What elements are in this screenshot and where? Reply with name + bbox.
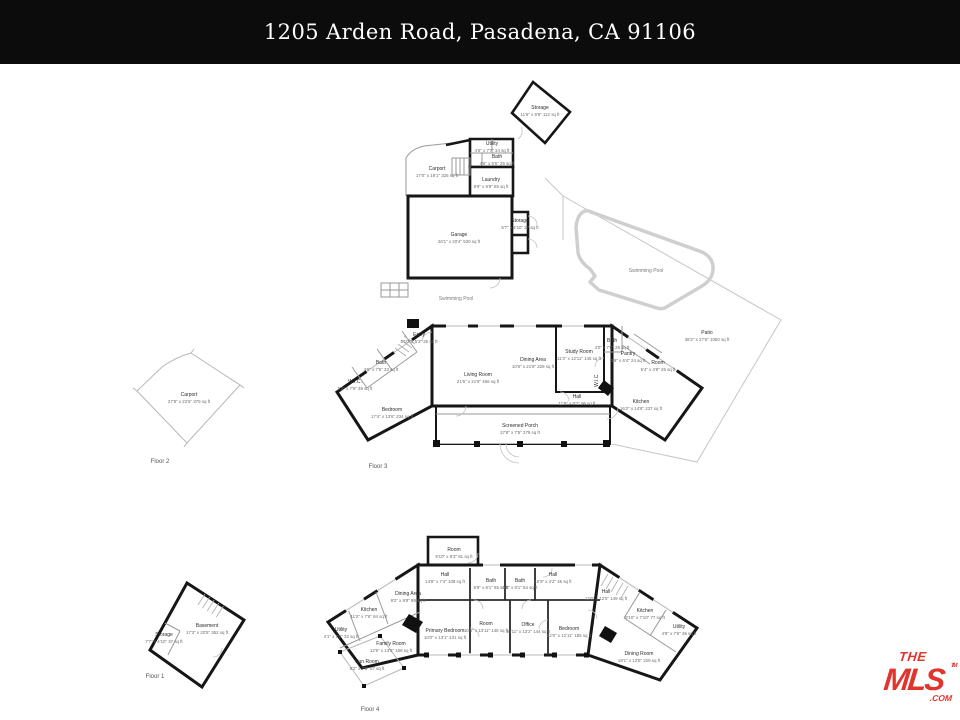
caption-floor2: Floor 2 <box>151 459 170 467</box>
room-label-bath-top: Bath4'6" x 5'6" 25 sq ft <box>480 154 515 166</box>
room-size: 4'6" x 7'5" 33 sq ft <box>364 366 399 372</box>
room-label-garage-storage: Storage5'7" x 4'10" 27 sq ft <box>501 218 538 230</box>
room-size: 5'7" x 4'10" 27 sq ft <box>501 224 538 230</box>
room-label-study-room: Study Room11'3" x 12'11" 145 sq ft <box>557 349 601 361</box>
pool-name: Swimming Pool <box>439 296 473 303</box>
room-label-bedroom-f3: Bedroom17'4" x 13'6" 234 sq ft <box>371 407 413 419</box>
room-size: 26'1" x 20'4" 530 sq ft <box>438 238 480 244</box>
room-label-room-f3: Room5'4" x 4'9" 25 sq ft <box>641 360 676 372</box>
room-label-wic2-f3: W.I.C. <box>594 373 601 387</box>
room-size: 4'9" x 7'6" 36 sq ft <box>662 630 697 636</box>
room-label-bath-f3b: Bath4'0" x 7'0" 28 sq ft <box>595 338 630 350</box>
room-label-bath-f4b: Bath6'8" x 8'1" 54 sq ft <box>503 578 538 590</box>
room-size: 8'2" x 7'0" 57 sq ft <box>350 665 385 671</box>
floor-caption: Floor 3 <box>369 464 388 472</box>
room-label-sun-room: Sun Room8'2" x 7'0" 57 sq ft <box>350 659 385 671</box>
themls-logo: THE MLSTM .COM <box>884 650 956 703</box>
room-size: 11'2" x 7'6" 84 sq ft <box>351 613 388 619</box>
room-size: 21'6" x 21'8" 466 sq ft <box>457 378 499 384</box>
room-size: 17'3" x 20'5" 352 sq ft <box>186 629 228 635</box>
room-size: 10'0" x 13'1" 131 sq ft <box>424 634 466 640</box>
room-size: 9'10" x 8'3" 81 sq ft <box>435 553 472 559</box>
room-label-dining-area-f3: Dining Area10'6" x 21'8" 228 sq ft <box>512 357 554 369</box>
room-size: 11'3" x 12'11" 145 sq ft <box>557 355 601 361</box>
floorplan-drawing <box>0 0 960 720</box>
room-size: 10'11" x 13'2" 144 sq ft <box>506 628 550 634</box>
room-label-office: Office10'11" x 13'2" 144 sq ft <box>506 622 550 634</box>
room-label-carport-top: Carport17'0" x 19'1" 325 sq ft <box>416 166 458 178</box>
room-size: 14'8" x 7'4" 108 sq ft <box>425 578 465 584</box>
caption-floor4: Floor 4 <box>361 707 380 715</box>
room-size: 12'5" x 13'6" 168 sq ft <box>370 647 412 653</box>
room-size: 9'2" x 9'8" 89 sq ft <box>391 597 426 603</box>
room-label-carport-diamond: Carport27'8" x 22'6" 379 sq ft <box>168 392 210 404</box>
room-size: 10'9" x 4'2" 45 sq ft <box>534 578 571 584</box>
trademark-symbol: TM <box>950 663 955 669</box>
room-label-screened-porch: Screened Porch37'8" x 7'5" 279 sq ft <box>500 423 540 435</box>
room-size: 17'4" x 13'6" 234 sq ft <box>371 413 413 419</box>
room-label-living-room: Living Room21'6" x 21'8" 466 sq ft <box>457 372 499 384</box>
room-size: 12'0" x 12'5" 149 sq ft <box>585 595 627 601</box>
floorplan-page: 1205 Arden Road, Pasadena, CA 91106 <box>0 0 960 720</box>
pool-label-lower: Swimming Pool <box>439 296 473 303</box>
room-size: 4'1" x 7'9" 32 sq ft <box>324 633 359 639</box>
room-label-laundry: Laundry8'9" x 9'8" 85 sq ft <box>474 177 509 189</box>
themls-logo-mls: MLSTM <box>882 664 957 695</box>
room-label-hall-f3: Hall11'9" x 8'2" 96 sq ft <box>559 394 596 406</box>
room-label-utility-f4b: Utility4'9" x 7'6" 36 sq ft <box>662 624 697 636</box>
room-size: 11'9" x 8'2" 96 sq ft <box>559 400 596 406</box>
floor3-plan <box>337 319 702 463</box>
room-label-garage: Garage26'1" x 20'4" 530 sq ft <box>438 232 480 244</box>
caption-floor1: Floor 1 <box>146 674 165 682</box>
room-label-bath-f3a: Bath4'6" x 7'5" 33 sq ft <box>364 360 399 372</box>
caption-floor3: Floor 3 <box>369 464 388 472</box>
room-name: W.I.C. <box>594 373 601 387</box>
room-size: 10'6" x 21'8" 228 sq ft <box>512 363 554 369</box>
room-label-dining-area-f4: Dining Area9'2" x 9'8" 89 sq ft <box>391 591 426 603</box>
room-size: 4'0" x 7'0" 28 sq ft <box>595 344 630 350</box>
room-label-kitchen-f4a: Kitchen11'2" x 7'6" 84 sq ft <box>351 607 388 619</box>
room-size: 18'1" x 12'8" 229 sq ft <box>618 657 660 663</box>
room-name: Screened Porch <box>500 423 540 430</box>
room-size: 38'2" x 27'6" 1050 sq ft <box>685 336 730 342</box>
room-size: 4'6" x 5'6" 25 sq ft <box>480 160 515 166</box>
room-label-entry: Entry4'10" x 5'3" 25 sq ft <box>400 332 437 344</box>
pool-name: Swimming Pool <box>629 268 663 275</box>
room-label-wic-f3: W.I.C.5'2" x 7'6" 39 sq ft <box>338 379 373 391</box>
room-label-room-f4: Room9'10" x 8'3" 81 sq ft <box>435 547 472 559</box>
room-size: 5'4" x 4'9" 25 sq ft <box>641 366 676 372</box>
room-label-hall-f4c: Hall12'0" x 12'5" 149 sq ft <box>585 589 627 601</box>
room-label-utility-f4a: Utility4'1" x 7'9" 32 sq ft <box>324 627 359 639</box>
room-label-room2-f4: Room10'6" x 13'11" 146 sq ft <box>464 621 508 633</box>
room-label-basement: Basement17'3" x 20'5" 352 sq ft <box>186 623 228 635</box>
room-label-family-room: Family Room12'5" x 13'6" 168 sq ft <box>370 641 412 653</box>
room-size: 17'0" x 19'1" 325 sq ft <box>416 172 458 178</box>
pool-label-upper: Swimming Pool <box>629 268 663 275</box>
room-label-patio: Patio38'2" x 27'6" 1050 sq ft <box>685 330 730 342</box>
room-label-primary-bedroom: Primary Bedroom10'0" x 13'1" 131 sq ft <box>424 628 466 640</box>
room-size: 8'9" x 9'8" 85 sq ft <box>474 183 509 189</box>
room-size: 6'8" x 8'1" 54 sq ft <box>503 584 538 590</box>
trellis-grid <box>381 283 408 297</box>
room-label-basement-storage: Storage7'7" x 4'10" 37 sq ft <box>145 632 182 644</box>
room-size: 11'6" x 9'9" 112 sq ft <box>520 111 559 117</box>
themls-logo-com: .COM <box>884 694 957 703</box>
room-label-dining-room: Dining Room18'1" x 12'8" 229 sq ft <box>618 651 660 663</box>
floor-caption: Floor 1 <box>146 674 165 682</box>
wall-diagonal-carport <box>446 140 470 145</box>
room-size: 27'8" x 22'6" 379 sq ft <box>168 398 210 404</box>
themls-logo-mls-text: MLS <box>882 662 945 697</box>
room-name: Primary Bedroom <box>424 628 466 635</box>
room-label-kitchen-f4b: Kitchen9'10" x 7'10" 77 sq ft <box>625 608 665 620</box>
room-size: 10'6" x 13'11" 146 sq ft <box>464 627 508 633</box>
floor-caption: Floor 2 <box>151 459 170 467</box>
room-size: 4'6" x 7'7" 34 sq ft <box>475 147 510 153</box>
room-label-kitchen-f3: Kitchen16'2" x 14'8" 237 sq ft <box>620 399 662 411</box>
room-label-hall-f4b: Hall10'9" x 4'2" 45 sq ft <box>534 572 571 584</box>
room-label-bedroom-f4: Bedroom12'0" x 12'11" 155 sq ft <box>547 626 591 638</box>
room-label-hall-f4a: Hall14'8" x 7'4" 108 sq ft <box>425 572 465 584</box>
room-size: 9'10" x 7'10" 77 sq ft <box>625 614 665 620</box>
room-size: 37'8" x 7'5" 279 sq ft <box>500 429 540 435</box>
floor-caption: Floor 4 <box>361 707 380 715</box>
room-size: 12'0" x 12'11" 155 sq ft <box>547 632 591 638</box>
pool-outline <box>576 211 713 309</box>
f3-porch-steps <box>500 444 519 463</box>
room-size: 5'2" x 7'6" 39 sq ft <box>338 385 373 391</box>
room-size: 7'7" x 4'10" 37 sq ft <box>145 638 182 644</box>
room-size: 16'2" x 14'8" 237 sq ft <box>620 405 662 411</box>
storage-shed-door-arc <box>518 127 522 139</box>
room-name: Dining Area <box>391 591 426 598</box>
room-label-utility-top: Utility4'6" x 7'7" 34 sq ft <box>475 141 510 153</box>
room-size: 4'10" x 5'3" 25 sq ft <box>400 338 437 344</box>
room-label-storage-shed: Storage11'6" x 9'9" 112 sq ft <box>520 105 559 117</box>
